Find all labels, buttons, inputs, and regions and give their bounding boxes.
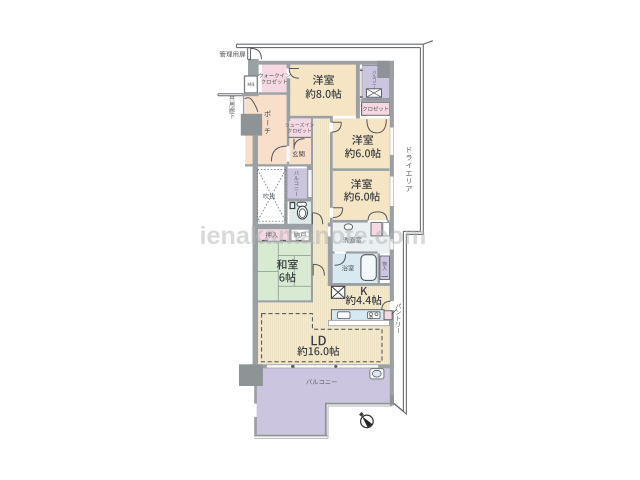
svg-text:ienakamanote.com: ienakamanote.com (200, 222, 427, 250)
